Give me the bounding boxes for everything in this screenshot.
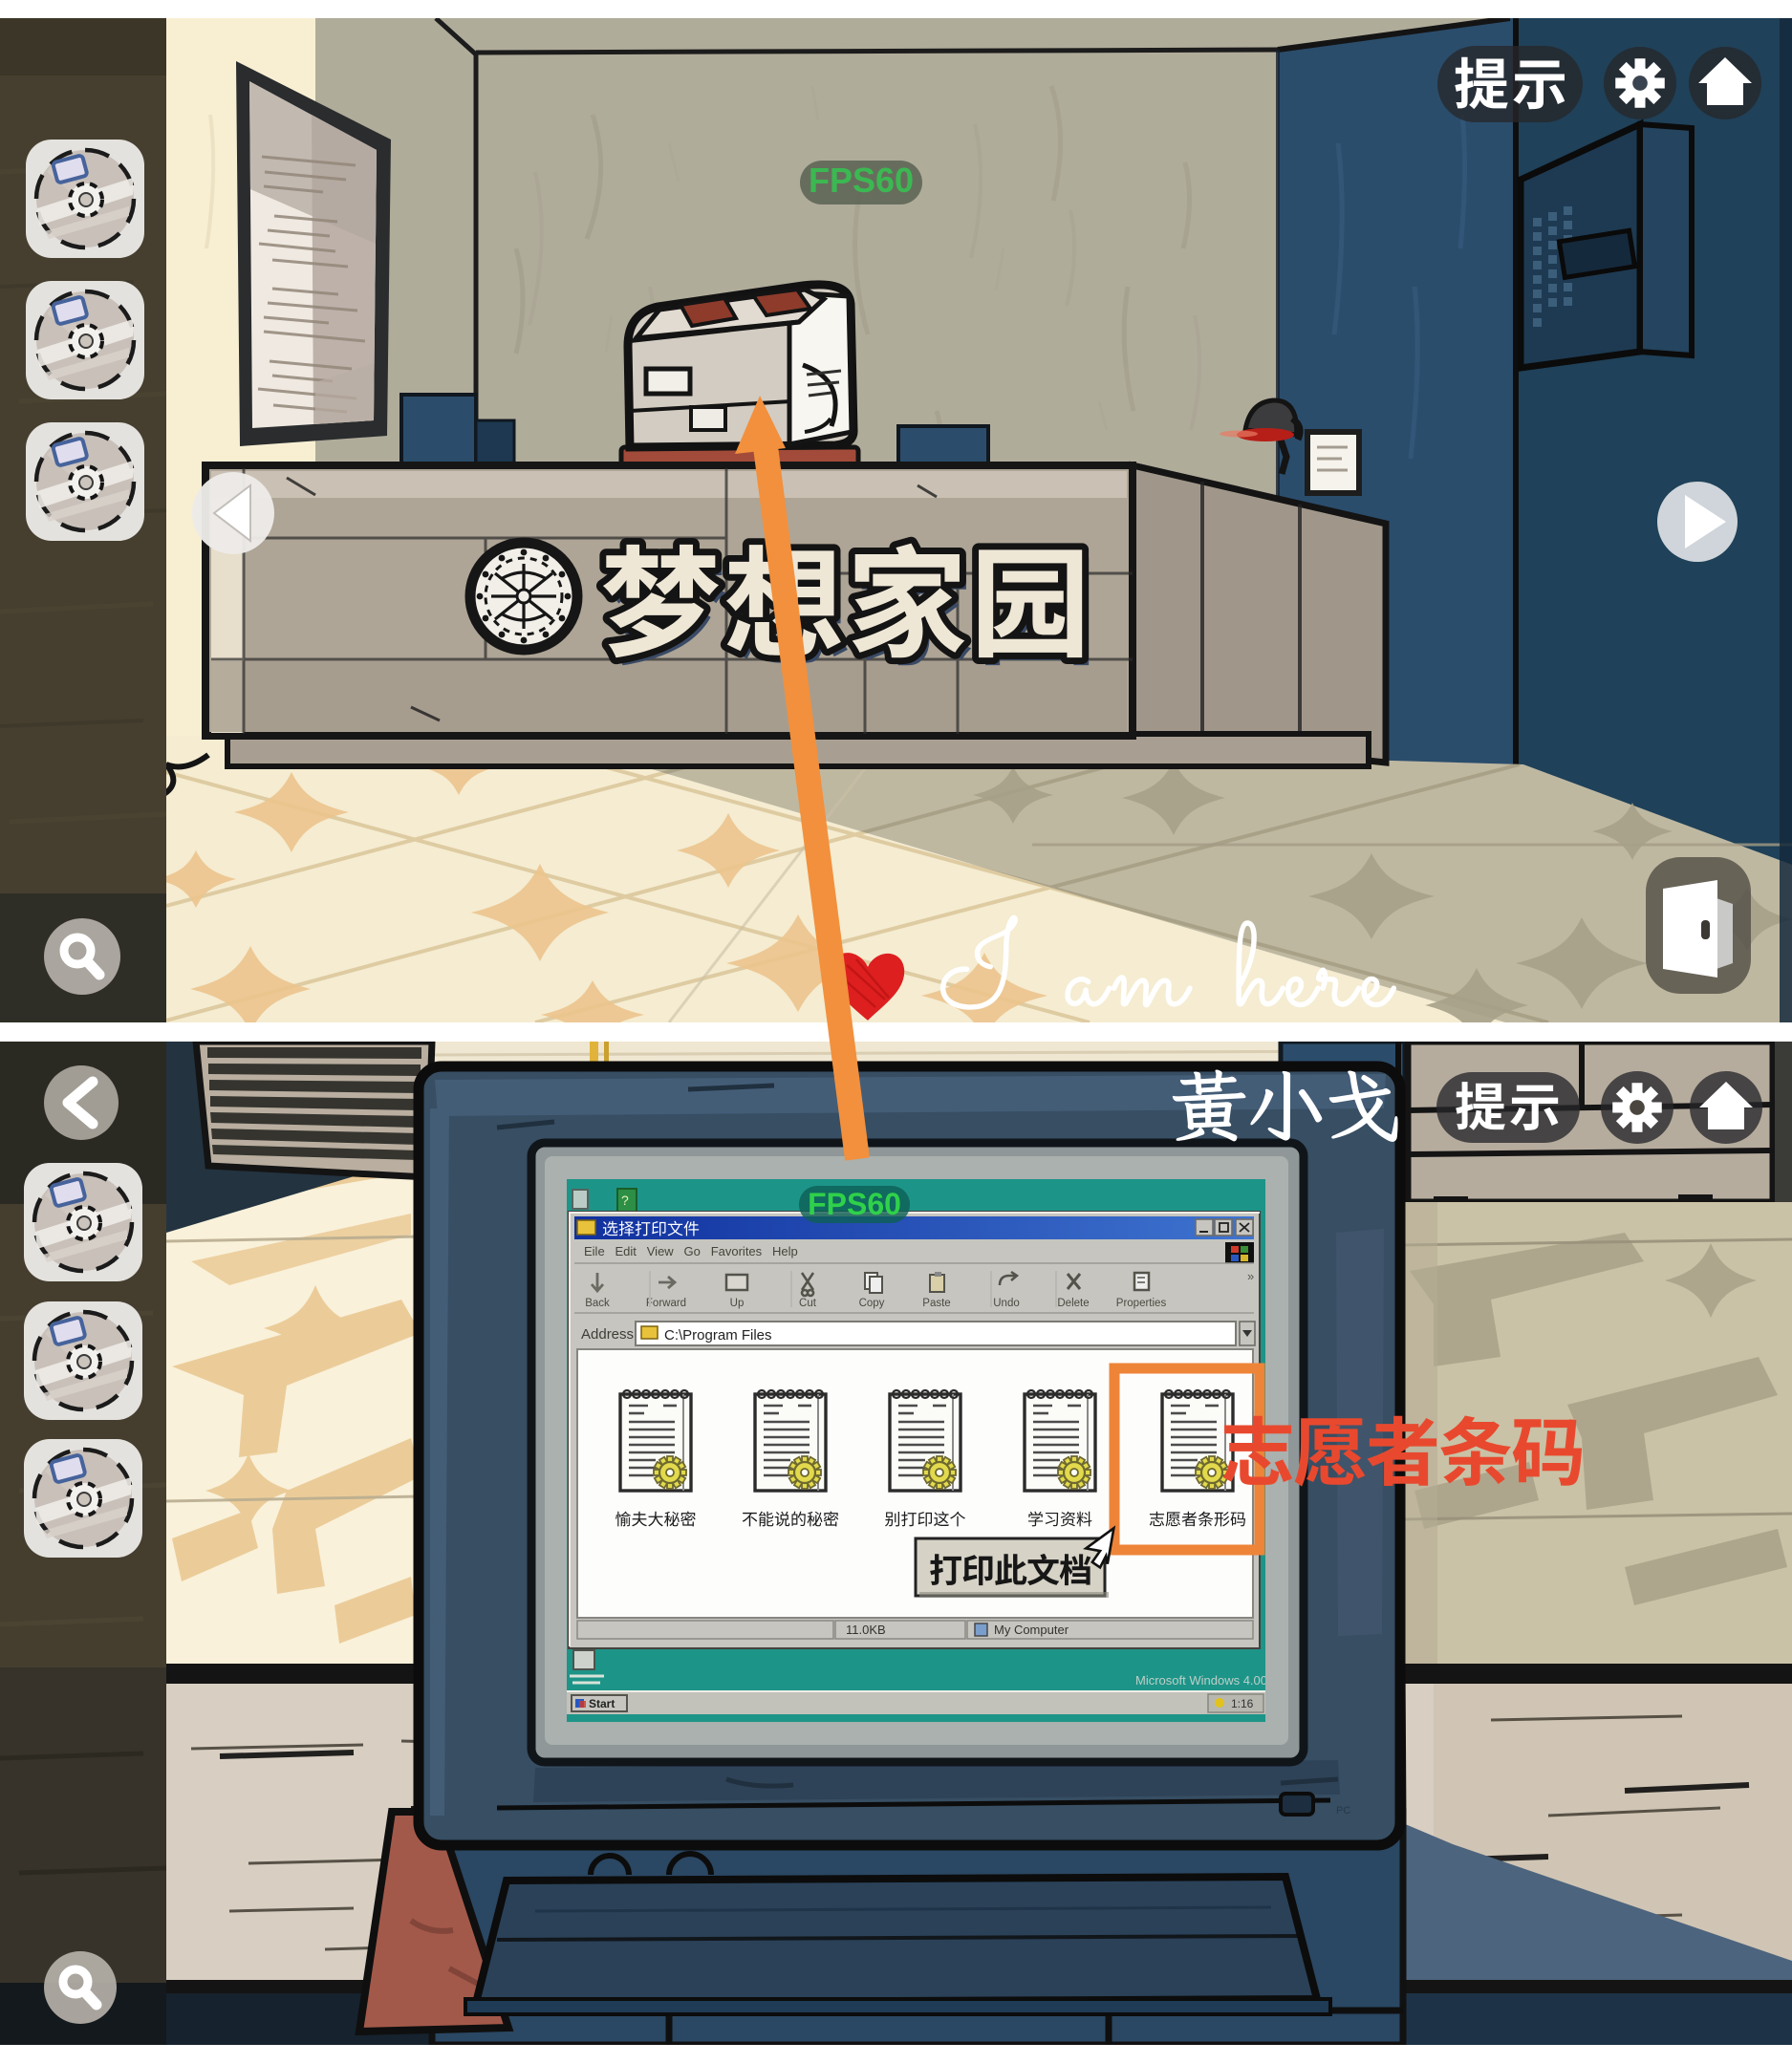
svg-text:?: ? <box>621 1193 629 1208</box>
svg-text:Undo: Undo <box>993 1298 1020 1309</box>
svg-text:Start: Start <box>589 1697 615 1710</box>
svg-text:Up: Up <box>730 1298 745 1309</box>
svg-text:Forward: Forward <box>646 1298 686 1309</box>
svg-text:Properties: Properties <box>1116 1298 1167 1309</box>
svg-text:1:16: 1:16 <box>1231 1697 1254 1710</box>
svg-text:Address: Address <box>581 1326 634 1343</box>
svg-text:My Computer: My Computer <box>994 1623 1069 1637</box>
svg-text:FPS60: FPS60 <box>809 161 914 200</box>
svg-text:PC: PC <box>1336 1805 1350 1817</box>
svg-text:Delete: Delete <box>1057 1298 1089 1309</box>
svg-text:Eile Edit View Go Favo: Eile Edit View Go Favorites Help <box>584 1244 798 1258</box>
svg-text:C:\Program Files: C:\Program Files <box>664 1327 772 1344</box>
svg-text:Copy: Copy <box>859 1298 885 1309</box>
svg-text:Paste: Paste <box>922 1298 950 1309</box>
svg-text:FPS60: FPS60 <box>808 1187 901 1221</box>
svg-text:Cut: Cut <box>799 1298 817 1309</box>
svg-text:11.0KB: 11.0KB <box>846 1623 886 1637</box>
svg-text:»: » <box>1247 1269 1254 1283</box>
svg-text:Back: Back <box>585 1298 610 1309</box>
